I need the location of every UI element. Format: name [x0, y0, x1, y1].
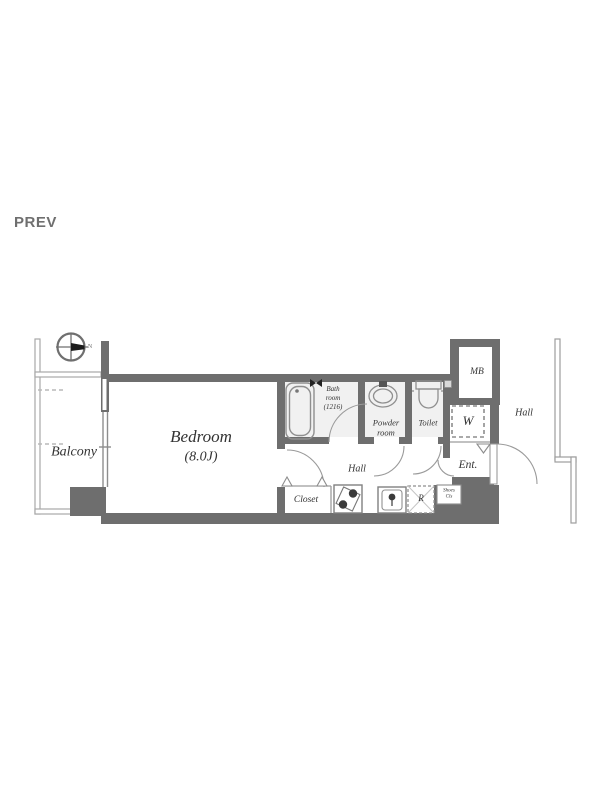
floorplan-drawing [0, 0, 600, 800]
room-label-powder-1: Powder [373, 418, 399, 427]
compass-icon [56, 333, 88, 361]
room-label-shoes-1: Shoes [443, 488, 455, 493]
room-label-bath-2: room [326, 395, 341, 403]
room-label-hall-outside: Hall [515, 409, 533, 420]
closet-door-triangles [282, 477, 327, 486]
floorplan-page: PREV [0, 0, 600, 800]
room-label-entrance: Ent. [459, 459, 478, 471]
front-door-leaf [490, 444, 497, 484]
room-label-hall-inside: Hall [348, 465, 366, 476]
room-label-mb: MB [470, 367, 484, 377]
balcony-window [99, 412, 111, 487]
ent-inner-door-arc [438, 460, 454, 476]
compass-north-label: N [88, 344, 92, 350]
room-label-washer: W [463, 414, 474, 428]
wall-window-slit [103, 379, 107, 410]
kitchen-sink-icon [378, 487, 406, 513]
room-label-bath-3: (1216) [324, 404, 343, 412]
room-label-bedroom: Bedroom [170, 428, 232, 446]
label-refrigerator: R [418, 494, 424, 504]
outside-hall-wall [555, 339, 576, 523]
stove-icon [334, 485, 362, 513]
room-label-toilet: Toilet [418, 418, 437, 427]
room-label-balcony: Balcony [51, 444, 97, 459]
front-door-arc [497, 444, 537, 484]
front-door-triangle [477, 444, 490, 453]
room-label-bath-1: Bath [326, 386, 339, 394]
room-label-closet: Closet [294, 495, 318, 505]
room-label-shoes-2: Cls [446, 494, 453, 499]
toilet-door-arc [413, 446, 441, 474]
pipe-space-marker [445, 381, 452, 388]
room-label-powder-2: room [377, 428, 395, 437]
bedroom-door-arc [287, 450, 324, 487]
powder-door-arc [374, 446, 404, 476]
room-label-bedroom-size: (8.0J) [184, 449, 217, 464]
balcony-dashed-marks [38, 390, 66, 444]
